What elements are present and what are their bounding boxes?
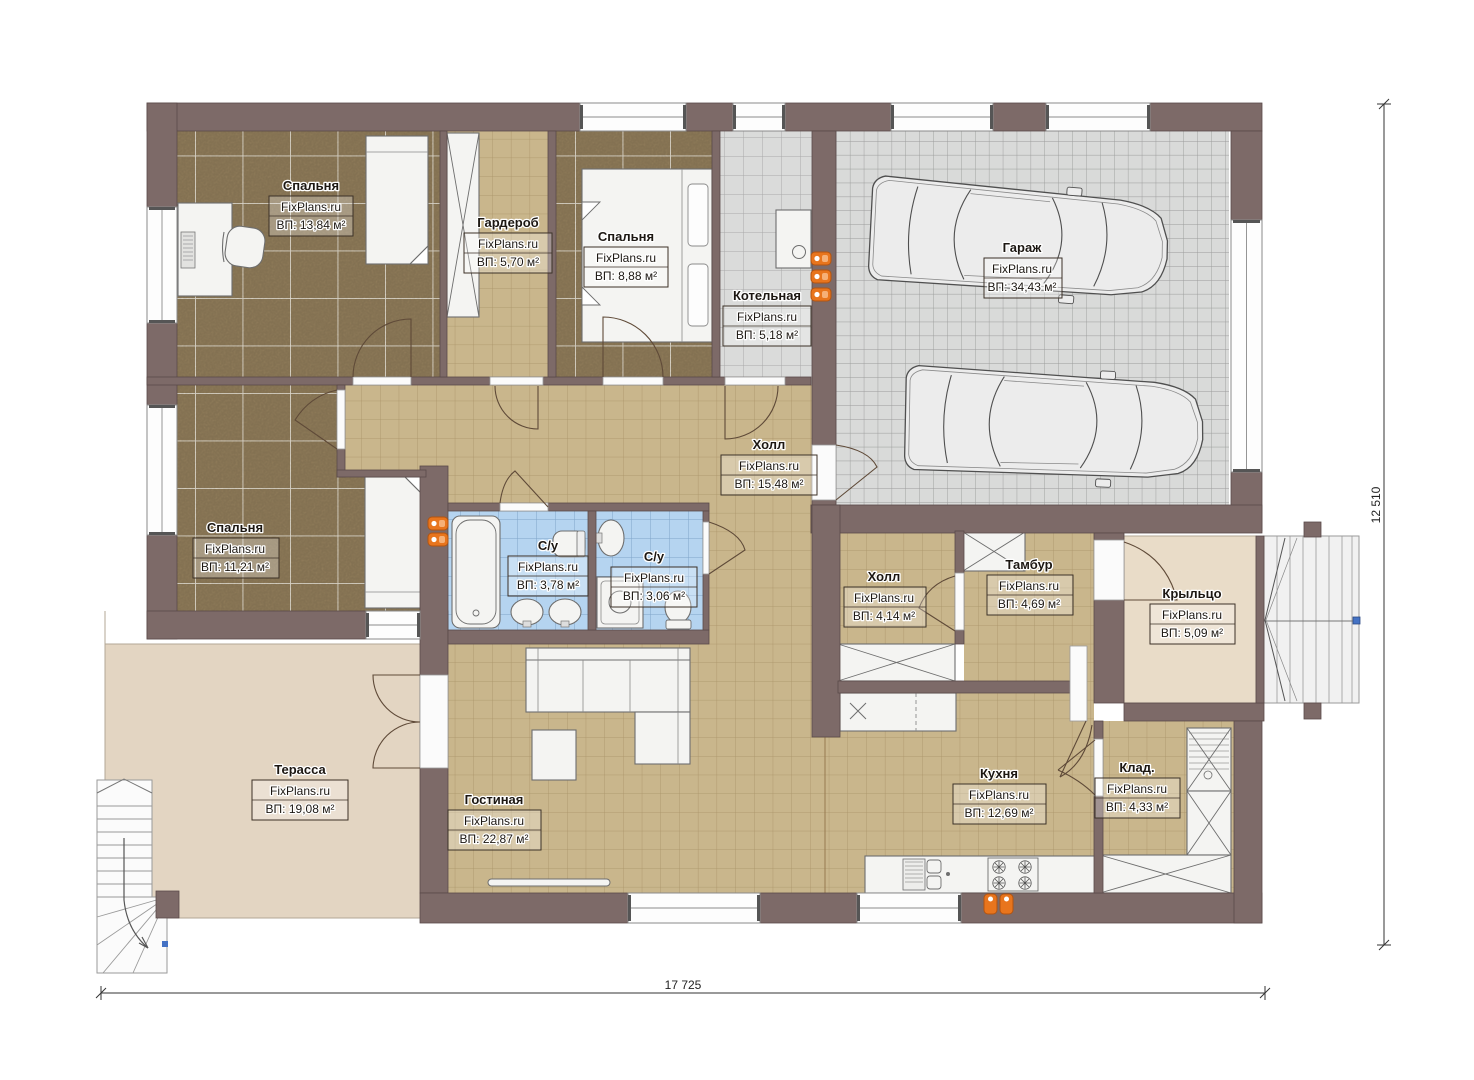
svg-text:FixPlans.ru: FixPlans.ru (1162, 608, 1222, 622)
svg-text:FixPlans.ru: FixPlans.ru (270, 784, 330, 798)
svg-text:ВП: 5,09 м²: ВП: 5,09 м² (1161, 626, 1223, 640)
svg-text:Гараж: Гараж (1003, 240, 1043, 255)
svg-text:Холл: Холл (753, 437, 786, 452)
svg-text:ВП: 4,33 м²: ВП: 4,33 м² (1106, 800, 1168, 814)
svg-text:FixPlans.ru: FixPlans.ru (854, 591, 914, 605)
svg-text:FixPlans.ru: FixPlans.ru (969, 788, 1029, 802)
svg-text:17 725: 17 725 (665, 978, 702, 992)
svg-text:ВП: 4,14 м²: ВП: 4,14 м² (853, 609, 915, 623)
svg-text:Котельная: Котельная (733, 288, 801, 303)
svg-text:С/у: С/у (644, 549, 665, 564)
svg-text:FixPlans.ru: FixPlans.ru (739, 459, 799, 473)
svg-text:FixPlans.ru: FixPlans.ru (464, 814, 524, 828)
svg-text:FixPlans.ru: FixPlans.ru (518, 560, 578, 574)
svg-text:FixPlans.ru: FixPlans.ru (737, 310, 797, 324)
svg-text:Кухня: Кухня (980, 766, 1018, 781)
svg-text:ВП: 12,69 м²: ВП: 12,69 м² (965, 806, 1034, 820)
svg-text:ВП: 13,84 м²: ВП: 13,84 м² (277, 218, 346, 232)
svg-text:Терасса: Терасса (274, 762, 326, 777)
svg-text:ВП: 8,88 м²: ВП: 8,88 м² (595, 269, 657, 283)
svg-text:ВП: 19,08 м²: ВП: 19,08 м² (266, 802, 335, 816)
svg-text:ВП: 15,48 м²: ВП: 15,48 м² (735, 477, 804, 491)
svg-text:FixPlans.ru: FixPlans.ru (478, 237, 538, 251)
svg-text:FixPlans.ru: FixPlans.ru (624, 571, 684, 585)
svg-text:Крыльцо: Крыльцо (1162, 586, 1221, 601)
svg-text:ВП: 3,06 м²: ВП: 3,06 м² (623, 589, 685, 603)
svg-text:FixPlans.ru: FixPlans.ru (1107, 782, 1167, 796)
svg-text:Клад.: Клад. (1119, 760, 1154, 775)
svg-text:Спальня: Спальня (283, 178, 339, 193)
svg-text:Гостиная: Гостиная (465, 792, 524, 807)
svg-text:Гардероб: Гардероб (477, 215, 538, 230)
svg-text:FixPlans.ru: FixPlans.ru (281, 200, 341, 214)
svg-text:ВП: 5,70 м²: ВП: 5,70 м² (477, 255, 539, 269)
svg-text:Спальня: Спальня (598, 229, 654, 244)
svg-text:ВП: 3,78 м²: ВП: 3,78 м² (517, 578, 579, 592)
svg-text:FixPlans.ru: FixPlans.ru (596, 251, 656, 265)
svg-text:Холл: Холл (868, 569, 901, 584)
svg-text:FixPlans.ru: FixPlans.ru (992, 262, 1052, 276)
svg-text:ВП: 11,21 м²: ВП: 11,21 м² (201, 560, 269, 574)
svg-text:ВП: 5,18 м²: ВП: 5,18 м² (736, 328, 798, 342)
svg-text:12 510: 12 510 (1369, 486, 1383, 523)
svg-text:FixPlans.ru: FixPlans.ru (999, 579, 1059, 593)
svg-text:ВП: 4,69 м²: ВП: 4,69 м² (998, 597, 1060, 611)
svg-text:ВП: 22,87 м²: ВП: 22,87 м² (460, 832, 529, 846)
svg-text:Спальня: Спальня (207, 520, 263, 535)
svg-text:ВП: 34,43 м²: ВП: 34,43 м² (988, 280, 1057, 294)
svg-text:FixPlans.ru: FixPlans.ru (205, 542, 265, 556)
svg-text:Тамбур: Тамбур (1005, 557, 1052, 572)
svg-text:С/у: С/у (538, 538, 559, 553)
